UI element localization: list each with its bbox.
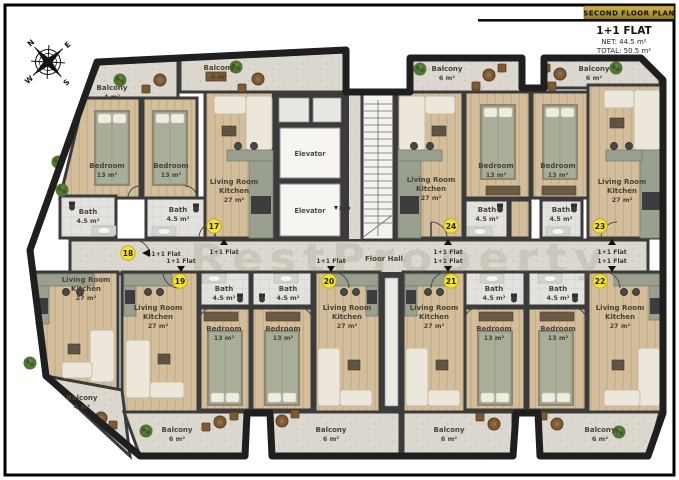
svg-text:4 m²: 4 m² bbox=[74, 403, 90, 411]
svg-text:Bedroom: Bedroom bbox=[540, 325, 575, 333]
svg-text:4.5 m²: 4.5 m² bbox=[276, 294, 299, 302]
svg-text:Bedroom: Bedroom bbox=[89, 162, 124, 170]
badge-flat-24: 24 bbox=[444, 219, 458, 233]
coffee-table-24 bbox=[432, 126, 446, 136]
svg-text:Balcony: Balcony bbox=[432, 65, 463, 73]
svg-text:Bedroom: Bedroom bbox=[206, 325, 241, 333]
svg-text:Balcony: Balcony bbox=[162, 426, 193, 434]
svg-text:4.5 m²: 4.5 m² bbox=[76, 217, 99, 225]
elevator-2-label: Elevator bbox=[295, 207, 327, 215]
svg-text:4.5 m²: 4.5 m² bbox=[482, 294, 505, 302]
svg-text:Kitchen: Kitchen bbox=[332, 313, 362, 321]
svg-text:Living Room: Living Room bbox=[134, 304, 183, 312]
svg-text:4 m²: 4 m² bbox=[104, 93, 120, 101]
dresser-19 bbox=[204, 312, 238, 321]
badge-flat-20: 20 bbox=[322, 274, 336, 288]
svg-text:18: 18 bbox=[123, 249, 133, 258]
svg-text:21: 21 bbox=[446, 277, 456, 286]
svg-text:Living Room: Living Room bbox=[62, 276, 111, 284]
svg-text:Kitchen: Kitchen bbox=[71, 285, 101, 293]
svg-text:Bath: Bath bbox=[478, 206, 496, 214]
svg-text:Balcony: Balcony bbox=[97, 84, 128, 92]
svg-text:1+1 Flat: 1+1 Flat bbox=[433, 258, 462, 265]
svg-text:13 m²: 13 m² bbox=[548, 334, 569, 342]
label-bath-21: Bath 4.5 m² bbox=[482, 285, 505, 302]
stove-17 bbox=[251, 196, 271, 214]
svg-text:27 m²: 27 m² bbox=[610, 322, 631, 330]
svg-text:Kitchen: Kitchen bbox=[605, 313, 635, 321]
svg-text:27 m²: 27 m² bbox=[612, 196, 633, 204]
dresser-23 bbox=[542, 186, 576, 195]
svg-text:13 m²: 13 m² bbox=[97, 171, 118, 179]
svg-text:27 m²: 27 m² bbox=[224, 196, 245, 204]
svg-text:Balcony: Balcony bbox=[434, 426, 465, 434]
svg-text:1+1 Flat: 1+1 Flat bbox=[597, 258, 626, 265]
coffee-table-22 bbox=[612, 360, 624, 370]
svg-text:19: 19 bbox=[175, 277, 185, 286]
net-area-text: NET: 44.5 m² bbox=[601, 38, 646, 46]
svg-text:4.5 m²: 4.5 m² bbox=[549, 215, 572, 223]
svg-text:1+1 Flat: 1+1 Flat bbox=[151, 251, 180, 258]
svg-text:Bedroom: Bedroom bbox=[153, 162, 188, 170]
title-underline bbox=[478, 19, 674, 22]
svg-text:4.5 m²: 4.5 m² bbox=[546, 294, 569, 302]
svg-text:1+1 Flat: 1+1 Flat bbox=[597, 249, 626, 256]
svg-text:Bath: Bath bbox=[485, 285, 503, 293]
svg-text:Living Room: Living Room bbox=[210, 178, 259, 186]
svg-text:13 m²: 13 m² bbox=[214, 334, 235, 342]
svg-text:Balcony: Balcony bbox=[67, 394, 98, 402]
coffee-table-21 bbox=[436, 360, 448, 370]
svg-text:22: 22 bbox=[595, 277, 605, 286]
svg-text:Bedroom: Bedroom bbox=[540, 162, 575, 170]
svg-text:Living Room: Living Room bbox=[323, 304, 372, 312]
svg-text:Kitchen: Kitchen bbox=[416, 185, 446, 193]
svg-text:Bedroom: Bedroom bbox=[476, 325, 511, 333]
svg-text:20: 20 bbox=[324, 277, 334, 286]
stove-20 bbox=[367, 290, 377, 304]
label-bath-24: Bath 4.5 m² bbox=[475, 206, 498, 223]
floor-plan-title: SECOND FLOOR PLAN bbox=[583, 10, 674, 18]
stove-23 bbox=[642, 192, 660, 210]
label-bath-22: Bath 4.5 m² bbox=[546, 285, 569, 302]
svg-text:Kitchen: Kitchen bbox=[219, 187, 249, 195]
balcony-20 bbox=[272, 412, 400, 456]
svg-text:Balcony: Balcony bbox=[316, 426, 347, 434]
svg-text:Balcony: Balcony bbox=[204, 64, 235, 72]
svg-text:27 m²: 27 m² bbox=[337, 322, 358, 330]
balcony-24 bbox=[410, 58, 522, 92]
svg-text:13 m²: 13 m² bbox=[484, 334, 505, 342]
svg-text:Bedroom: Bedroom bbox=[265, 325, 300, 333]
svg-text:Balcony: Balcony bbox=[579, 65, 610, 73]
svg-text:27 m²: 27 m² bbox=[424, 322, 445, 330]
stove-24 bbox=[400, 196, 419, 214]
flat-type-title: 1+1 FLAT bbox=[596, 25, 652, 37]
svg-text:4.5 m²: 4.5 m² bbox=[166, 215, 189, 223]
floor-plan-canvas: SECOND FLOOR PLAN 1+1 FLAT NET: 44.5 m² … bbox=[0, 0, 679, 480]
coffee-table-17 bbox=[222, 126, 236, 136]
badge-flat-17: 17 bbox=[207, 219, 221, 233]
svg-text:13 m²: 13 m² bbox=[486, 171, 507, 179]
svg-text:24: 24 bbox=[446, 222, 456, 231]
svg-text:4.5 m²: 4.5 m² bbox=[475, 215, 498, 223]
svg-text:Living Room: Living Room bbox=[598, 178, 647, 186]
dresser-22 bbox=[540, 312, 574, 321]
svg-text:Living Room: Living Room bbox=[407, 176, 456, 184]
svg-text:6 m²: 6 m² bbox=[211, 73, 227, 81]
svg-text:Living Room: Living Room bbox=[596, 304, 645, 312]
svg-text:Bath: Bath bbox=[79, 208, 97, 216]
svg-text:17: 17 bbox=[209, 222, 219, 231]
badge-flat-21: 21 bbox=[444, 274, 458, 288]
label-bath-19: Bath 4.5 m² bbox=[212, 285, 235, 302]
svg-text:23: 23 bbox=[595, 222, 605, 231]
svg-text:Living Room: Living Room bbox=[410, 304, 459, 312]
total-area-text: TOTAL: 50.5 m² bbox=[596, 47, 651, 55]
svg-text:6 m²: 6 m² bbox=[169, 435, 185, 443]
svg-text:13 m²: 13 m² bbox=[161, 171, 182, 179]
stove-21 bbox=[406, 290, 416, 304]
svg-text:27 m²: 27 m² bbox=[421, 194, 442, 202]
floor-hall-label: Floor Hall bbox=[365, 255, 403, 263]
stove-19 bbox=[125, 290, 135, 304]
coffee-table-23 bbox=[610, 118, 624, 128]
badge-flat-23: 23 bbox=[593, 219, 607, 233]
svg-text:Bath: Bath bbox=[279, 285, 297, 293]
svg-text:13 m²: 13 m² bbox=[273, 334, 294, 342]
svg-text:27 m²: 27 m² bbox=[148, 322, 169, 330]
kitchen-counter-22 bbox=[614, 274, 661, 286]
svg-text:13 m²: 13 m² bbox=[548, 171, 569, 179]
level-marker-value: 8.10 bbox=[339, 206, 350, 212]
label-bath-23: Bath 4.5 m² bbox=[549, 206, 572, 223]
label-bath-18: Bath 4.5 m² bbox=[76, 208, 99, 225]
svg-text:27 m²: 27 m² bbox=[76, 294, 97, 302]
dresser-20 bbox=[266, 312, 300, 321]
hall-24 bbox=[510, 200, 530, 238]
svg-text:4.5 m²: 4.5 m² bbox=[212, 294, 235, 302]
svg-text:Bath: Bath bbox=[552, 206, 570, 214]
svg-text:Kitchen: Kitchen bbox=[607, 187, 637, 195]
label-bath-20: Bath 4.5 m² bbox=[276, 285, 299, 302]
svg-text:1+1 Flat: 1+1 Flat bbox=[166, 258, 195, 265]
svg-text:1+1 Flat: 1+1 Flat bbox=[316, 258, 345, 265]
svg-text:6 m²: 6 m² bbox=[441, 435, 457, 443]
svg-text:Bath: Bath bbox=[549, 285, 567, 293]
svg-text:6 m²: 6 m² bbox=[439, 74, 455, 82]
coffee-table-18 bbox=[68, 344, 80, 354]
svg-text:1+1 Flat: 1+1 Flat bbox=[433, 249, 462, 256]
svg-text:Bedroom: Bedroom bbox=[478, 162, 513, 170]
dresser-24 bbox=[486, 186, 520, 195]
dresser-21 bbox=[479, 312, 513, 321]
svg-text:Balcony: Balcony bbox=[585, 426, 616, 434]
svg-text:Kitchen: Kitchen bbox=[419, 313, 449, 321]
floor-plan-page: SECOND FLOOR PLAN 1+1 FLAT NET: 44.5 m² … bbox=[0, 0, 679, 480]
coffee-table-20 bbox=[348, 360, 360, 370]
svg-text:1+1 Flat: 1+1 Flat bbox=[209, 249, 238, 256]
svg-text:Kitchen: Kitchen bbox=[143, 313, 173, 321]
badge-flat-22: 22 bbox=[593, 274, 607, 288]
svg-text:6 m²: 6 m² bbox=[592, 435, 608, 443]
badge-flat-18: 18 bbox=[121, 246, 135, 260]
stove-22 bbox=[650, 298, 660, 314]
svg-text:6 m²: 6 m² bbox=[323, 435, 339, 443]
coffee-table-19 bbox=[158, 354, 170, 364]
svg-text:Bath: Bath bbox=[169, 206, 187, 214]
badge-flat-19: 19 bbox=[173, 274, 187, 288]
label-bath-17: Bath 4.5 m² bbox=[166, 206, 189, 223]
svg-text:6 m²: 6 m² bbox=[586, 74, 602, 82]
elevator-1-label: Elevator bbox=[295, 150, 327, 158]
svg-text:Bath: Bath bbox=[215, 285, 233, 293]
